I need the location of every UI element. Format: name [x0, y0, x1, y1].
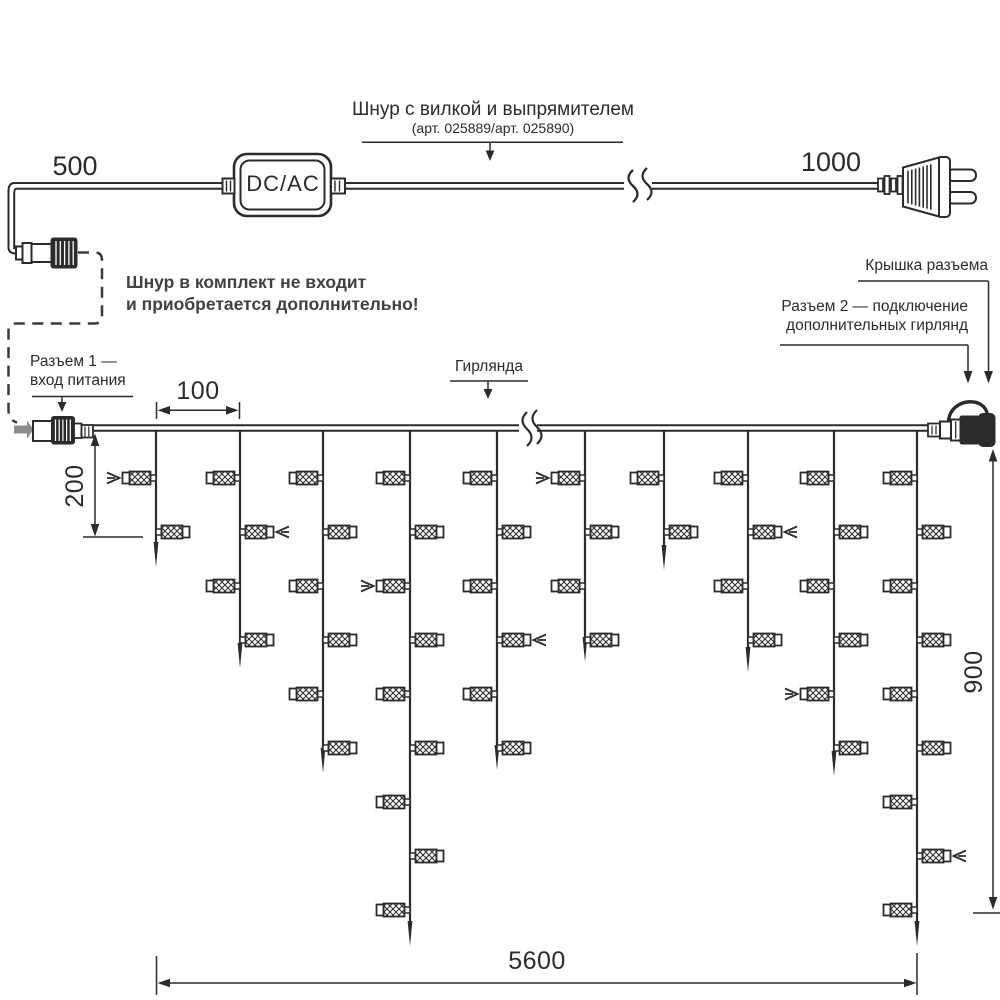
lamp-body — [503, 634, 524, 647]
lamp-body — [471, 580, 492, 593]
lamp-cap — [464, 581, 471, 592]
lamp-cap — [944, 527, 951, 538]
drop-tip — [154, 542, 159, 567]
cord-note-line1: Шнур в комплект не входит — [126, 273, 366, 293]
lamp-body — [722, 580, 743, 593]
flash-arrow-icon — [107, 473, 120, 484]
lamp-body — [891, 472, 912, 485]
cord-end-connector — [32, 244, 52, 262]
plug-strain-relief — [891, 179, 896, 192]
connector1-label-line2: вход питания — [30, 372, 126, 389]
cord-end-connector — [23, 243, 32, 263]
lamp-cap — [612, 527, 619, 538]
dcac-nub — [331, 179, 345, 194]
lamp-cap — [350, 527, 357, 538]
lamp-cap — [801, 473, 808, 484]
lamp-cap — [290, 473, 297, 484]
lamp-body — [722, 472, 743, 485]
lamp-body — [329, 634, 350, 647]
flash-arrow-icon — [534, 635, 547, 646]
lamp-body — [329, 742, 350, 755]
lamp-body — [384, 688, 405, 701]
lamp-cap — [552, 473, 559, 484]
drop-tip — [238, 643, 243, 668]
dim-200-label: 200 — [61, 456, 89, 516]
plug-strain-relief — [898, 176, 903, 194]
garland-break-icon — [523, 412, 532, 446]
lamp-cap — [884, 905, 891, 916]
lamp-body — [840, 526, 861, 539]
lamp-cap — [775, 635, 782, 646]
lamp-body — [591, 634, 612, 647]
connector1-arrow-icon — [58, 402, 67, 412]
lamp-body — [808, 472, 829, 485]
dim-5600-label: 5600 — [492, 947, 582, 975]
lamp-cap — [944, 635, 951, 646]
lamp-body — [384, 472, 405, 485]
lamp-body — [559, 580, 580, 593]
connector1-label-line1: Разъем 1 — — [30, 353, 117, 370]
cord-title: Шнур с вилкой и выпрямителем — [312, 99, 674, 120]
dim-200-arrow-icon — [91, 524, 100, 537]
lamp-cap — [437, 743, 444, 754]
connector1-nut — [74, 424, 82, 439]
lamp-cap — [377, 905, 384, 916]
lamp-body — [840, 742, 861, 755]
connector2-cap — [979, 414, 995, 446]
plug-prong — [947, 170, 976, 182]
cord-break-icon — [629, 170, 638, 202]
lamp-cap — [524, 635, 531, 646]
lamp-cap — [377, 473, 384, 484]
lamp-cap — [884, 797, 891, 808]
lamp-body — [923, 526, 944, 539]
plug-strain-relief — [878, 179, 883, 192]
dim-100-label: 100 — [167, 377, 229, 405]
connector2-body — [940, 422, 951, 439]
dim-100-arrow-icon — [226, 406, 239, 415]
lamp-cap — [377, 797, 384, 808]
lamp-cap — [267, 635, 274, 646]
garland-arrow-icon — [484, 389, 493, 399]
lamp-body — [840, 634, 861, 647]
flash-arrow-icon — [361, 581, 374, 592]
gray-arrow-icon — [14, 421, 34, 439]
drop-tip — [746, 647, 751, 672]
connector-cap-label: Крышка разъема — [826, 257, 988, 274]
lamp-body — [591, 526, 612, 539]
flash-arrow-icon — [785, 689, 798, 700]
connector2-label-line1: Разъем 2 — подключение — [766, 298, 968, 315]
lamp-cap — [350, 743, 357, 754]
dim-900-arrow-icon — [989, 449, 998, 462]
lamp-cap — [775, 527, 782, 538]
lamp-body — [416, 742, 437, 755]
lamp-cap — [944, 743, 951, 754]
lamp-body — [754, 634, 775, 647]
lamp-body — [297, 580, 318, 593]
lamp-body — [130, 472, 151, 485]
lamp-cap — [801, 581, 808, 592]
lamp-body — [503, 526, 524, 539]
lamp-cap — [631, 473, 638, 484]
lamp-body — [891, 796, 912, 809]
lamp-body — [891, 580, 912, 593]
drop-tip — [832, 751, 837, 776]
lamp-body — [297, 472, 318, 485]
lamp-cap — [944, 851, 951, 862]
cap-arrow-icon — [984, 371, 993, 384]
cord-break-icon — [643, 168, 652, 200]
lamp-cap — [884, 581, 891, 592]
lamp-body — [384, 904, 405, 917]
dim-5600-arrow-icon — [904, 979, 917, 988]
lamp-body — [246, 634, 267, 647]
flash-arrow-icon — [536, 473, 549, 484]
cord-article-numbers: (арт. 025889/арт. 025890) — [312, 121, 674, 137]
connector2-label-line2: дополнительных гирлянд — [766, 317, 968, 334]
connector2-barrel — [961, 417, 980, 444]
cord-length-right-label: 1000 — [786, 147, 876, 177]
connector1-body — [33, 421, 52, 441]
lamp-body — [891, 688, 912, 701]
lamp-body — [670, 526, 691, 539]
lamp-cap — [464, 473, 471, 484]
connector1-coupler — [82, 425, 94, 438]
flash-arrow-icon — [954, 851, 967, 862]
lamp-cap — [524, 743, 531, 754]
lamp-body — [214, 580, 235, 593]
drop-tip — [915, 921, 920, 946]
lamp-body — [754, 526, 775, 539]
lamp-body — [503, 742, 524, 755]
lamp-body — [162, 526, 183, 539]
lamp-cap — [691, 527, 698, 538]
garland-label: Гирлянда — [429, 358, 549, 375]
lamp-cap — [437, 635, 444, 646]
dcac-converter-label: DC/AC — [236, 172, 330, 197]
lamp-cap — [290, 689, 297, 700]
dcac-nub — [223, 179, 235, 194]
lamp-cap — [861, 527, 868, 538]
dim-900-arrow-icon — [989, 897, 998, 910]
lamp-body — [471, 688, 492, 701]
dim-5600-arrow-icon — [158, 979, 171, 988]
plug-strain-relief — [885, 176, 890, 194]
connector2-arrow-icon — [964, 371, 973, 384]
lamp-body — [416, 850, 437, 863]
lamp-cap — [552, 581, 559, 592]
lamp-body — [246, 526, 267, 539]
lamp-body — [384, 580, 405, 593]
lamp-cap — [861, 635, 868, 646]
lamp-cap — [801, 689, 808, 700]
lamp-cap — [290, 581, 297, 592]
lamp-cap — [715, 581, 722, 592]
plug-prong — [947, 192, 976, 204]
lamp-cap — [437, 851, 444, 862]
title-arrow-icon — [486, 151, 495, 162]
lamp-cap — [183, 527, 190, 538]
lamp-cap — [612, 635, 619, 646]
lamp-body — [416, 634, 437, 647]
lamp-cap — [207, 473, 214, 484]
flash-arrow-icon — [277, 527, 290, 538]
lamp-body — [808, 688, 829, 701]
lamp-body — [923, 634, 944, 647]
lamp-cap — [123, 473, 130, 484]
lamp-body — [891, 904, 912, 917]
cord-length-left-label: 500 — [45, 151, 105, 181]
lamp-cap — [861, 743, 868, 754]
drop-tip — [662, 545, 667, 570]
connector2-stub — [928, 424, 940, 437]
lamp-body — [329, 526, 350, 539]
power-cord-corner — [14, 189, 16, 249]
lamp-body — [471, 472, 492, 485]
lamp-cap — [715, 473, 722, 484]
cord-note-line2: и приобретается дополнительно! — [126, 295, 419, 315]
lamp-cap — [350, 635, 357, 646]
lamp-body — [923, 742, 944, 755]
lamp-cap — [377, 581, 384, 592]
flash-arrow-icon — [785, 527, 798, 538]
lamp-cap — [437, 527, 444, 538]
lamp-cap — [377, 689, 384, 700]
lamp-body — [384, 796, 405, 809]
lamp-body — [808, 580, 829, 593]
lamp-body — [923, 850, 944, 863]
garland-break-icon — [533, 410, 542, 444]
lamp-body — [214, 472, 235, 485]
lamp-cap — [207, 581, 214, 592]
lamp-body — [559, 472, 580, 485]
lamp-body — [638, 472, 659, 485]
lamp-cap — [524, 527, 531, 538]
dim-900-label: 900 — [960, 642, 988, 702]
drop-tip — [408, 921, 413, 946]
lamp-body — [416, 526, 437, 539]
lamp-cap — [884, 689, 891, 700]
lamp-cap — [267, 527, 274, 538]
lamp-cap — [884, 473, 891, 484]
lamp-body — [297, 688, 318, 701]
lamp-cap — [464, 689, 471, 700]
diagram-page: 500 Шнур с вилкой и выпрямителем (арт. 0… — [0, 0, 1000, 1000]
dim-100-arrow-icon — [158, 406, 171, 415]
